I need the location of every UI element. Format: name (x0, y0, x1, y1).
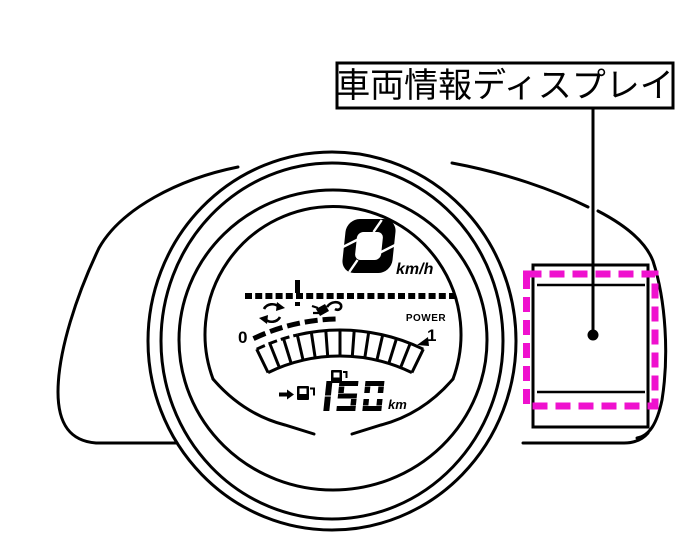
instrument-cluster-diagram: km/h POWER 0 1 (0, 0, 686, 556)
gauge-max-label: 1 (427, 326, 436, 345)
gauge-pod-bezel (148, 152, 516, 530)
speed-unit-label: km/h (396, 261, 434, 278)
fuel-pump-icon (297, 386, 314, 400)
regeneration-arrows-icon (259, 302, 285, 324)
power-gauge-arc (254, 319, 430, 373)
housing-left-wing (58, 167, 238, 443)
trip-bar (245, 280, 455, 306)
speed-digit-zero (340, 219, 398, 273)
speed-readout: km/h (340, 219, 433, 278)
power-gauge-label: POWER (406, 313, 447, 324)
diagram-canvas: km/h POWER 0 1 (0, 0, 686, 556)
trip-bar-tick (295, 280, 300, 293)
gauge-min-label: 0 (238, 328, 247, 347)
range-readout: km (279, 381, 407, 412)
callout-label: 車両情報ディスプレイ (336, 67, 674, 105)
range-digits (323, 381, 384, 411)
leader-dot (588, 330, 599, 341)
range-unit-label: km (388, 397, 407, 412)
right-arrow-icon (279, 390, 294, 400)
charging-plug-icon (312, 302, 341, 316)
